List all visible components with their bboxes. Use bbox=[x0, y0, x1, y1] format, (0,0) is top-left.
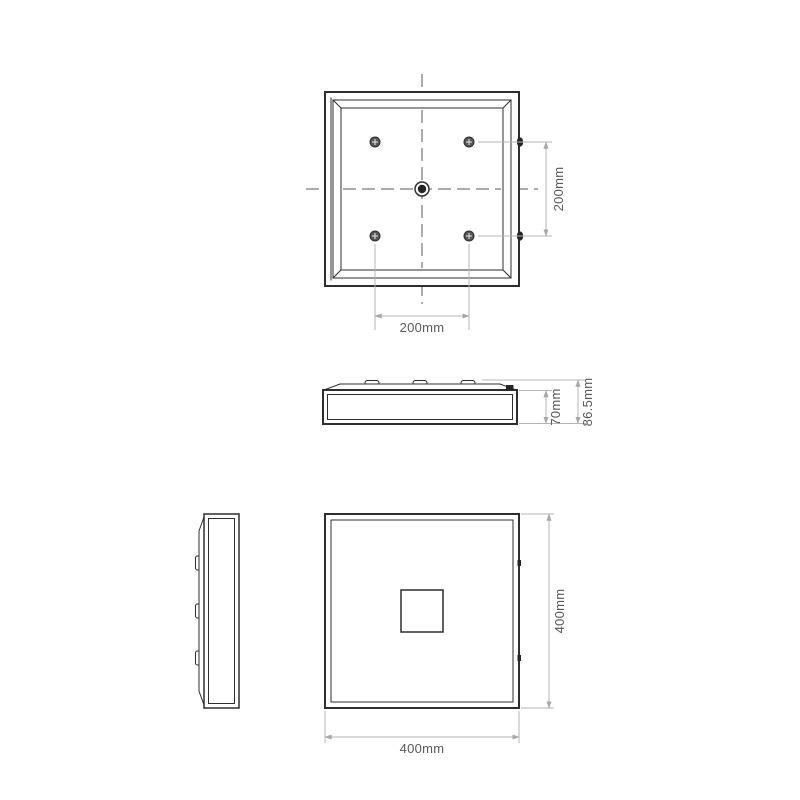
dimension-side-inner: 70mm bbox=[519, 388, 586, 425]
body-outline bbox=[204, 514, 239, 708]
dim-label: 200mm bbox=[400, 320, 445, 335]
front-view: 400mm 400mm bbox=[325, 514, 567, 756]
body-outline bbox=[323, 390, 517, 424]
technical-drawing-canvas: 200mm 200mm 70mm 86 bbox=[0, 0, 800, 800]
mounting-clip-icon bbox=[506, 385, 514, 391]
dimension-front-vertical: 400mm bbox=[521, 514, 567, 708]
dim-label: 200mm bbox=[551, 167, 566, 212]
center-detail-square bbox=[401, 590, 443, 632]
screw-icon bbox=[464, 137, 474, 147]
dimension-front-horizontal: 400mm bbox=[325, 711, 519, 756]
screw-icon bbox=[370, 231, 380, 241]
dim-label: 86.5mm bbox=[580, 378, 595, 427]
dim-label: 400mm bbox=[552, 589, 567, 634]
top-view: 200mm 200mm bbox=[306, 74, 566, 335]
center-fixing-icon bbox=[415, 182, 429, 196]
drawing-svg: 200mm 200mm 70mm 86 bbox=[0, 0, 800, 800]
dim-label: 70mm bbox=[548, 388, 563, 425]
side-view: 70mm 86.5mm bbox=[323, 378, 595, 427]
dim-label: 400mm bbox=[400, 741, 445, 756]
mounting-clip-icon bbox=[518, 655, 522, 661]
end-view bbox=[196, 514, 240, 708]
screw-icon bbox=[464, 231, 474, 241]
screw-icon bbox=[370, 137, 380, 147]
mounting-clip-icon bbox=[518, 560, 522, 566]
